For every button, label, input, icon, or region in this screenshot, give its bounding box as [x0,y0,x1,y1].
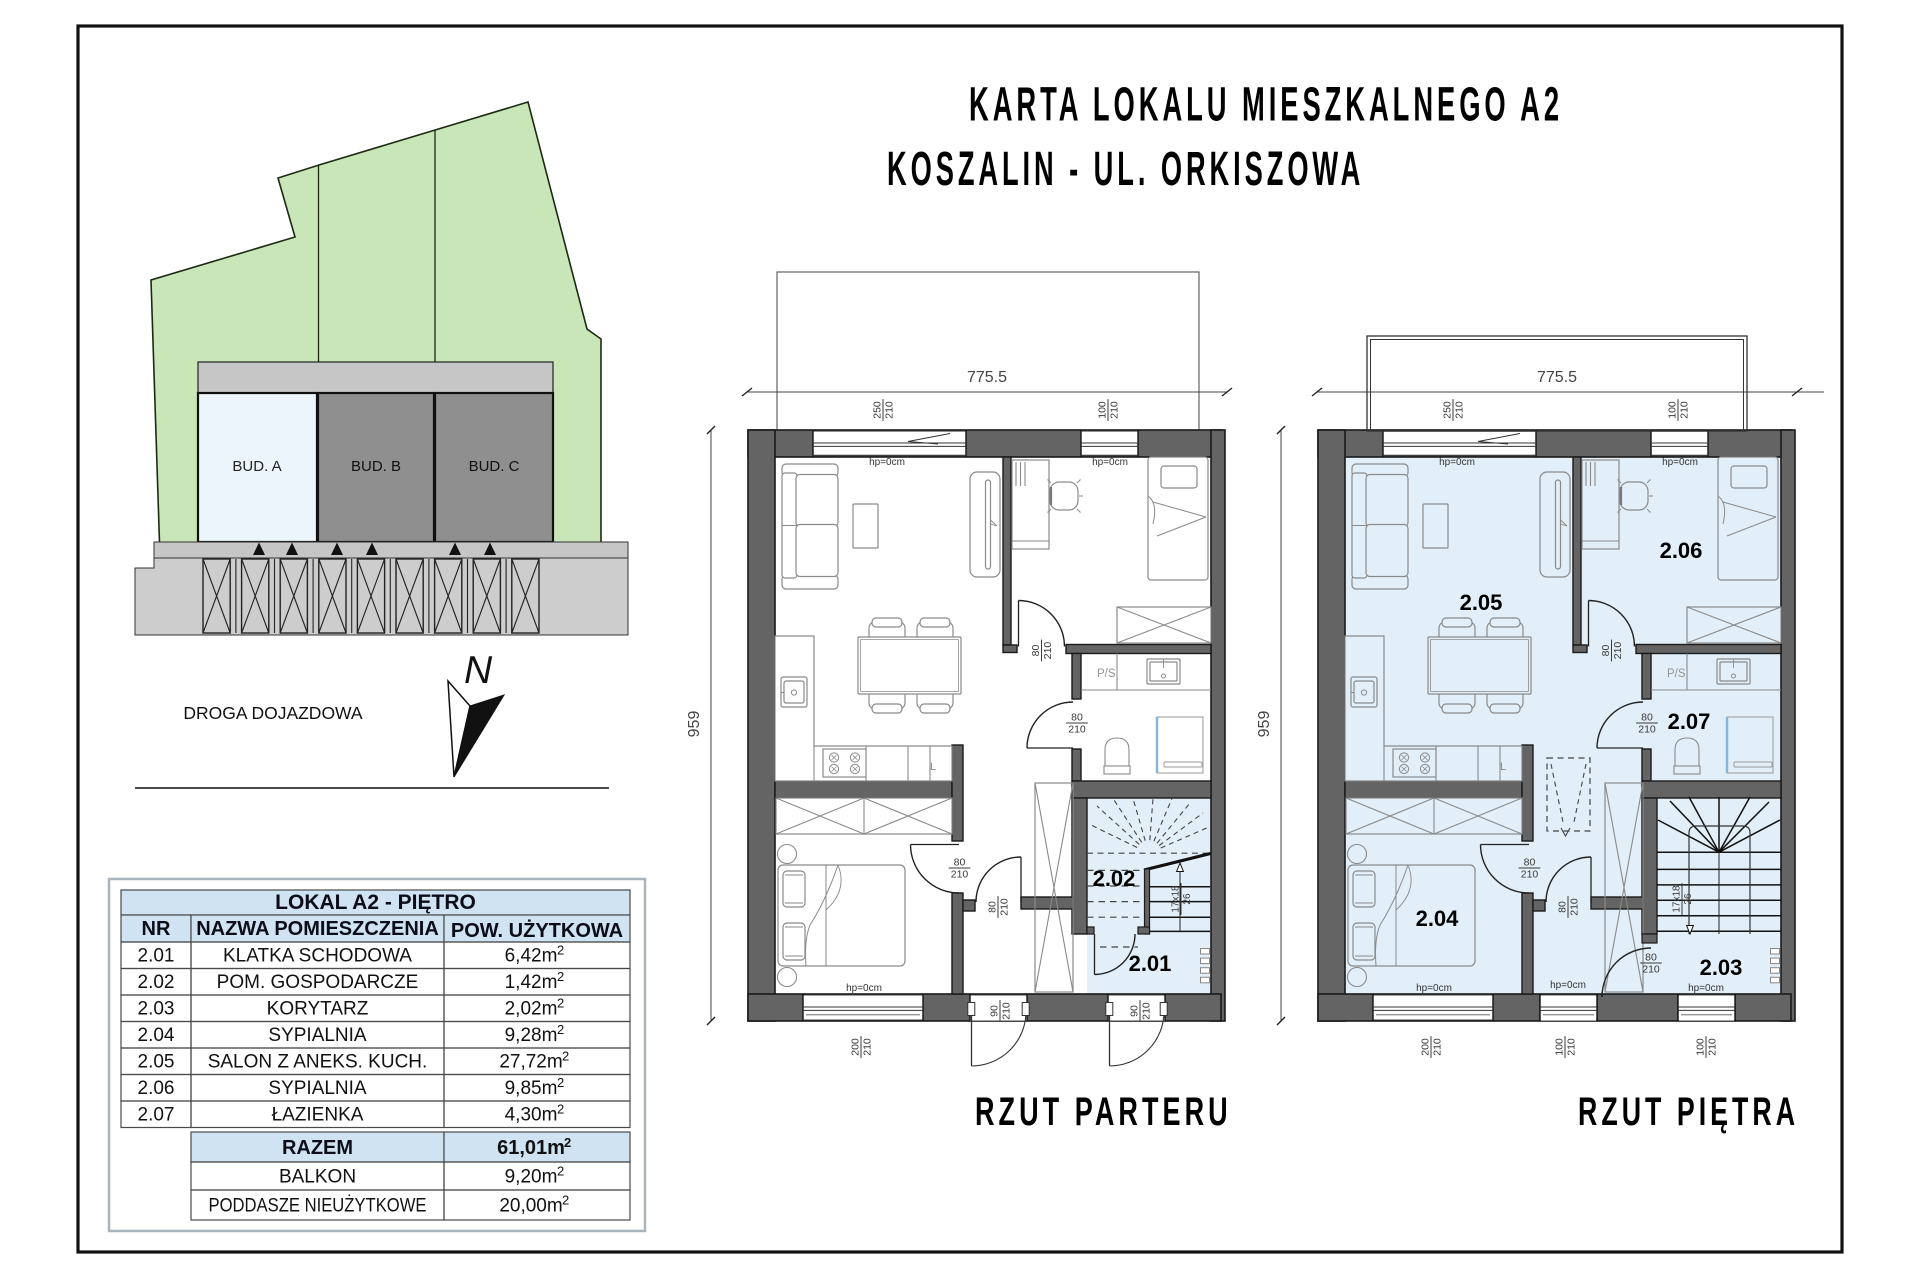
svg-text:2: 2 [557,1102,564,1117]
svg-text:RAZEM: RAZEM [282,1137,353,1159]
svg-text:210: 210 [1566,1038,1578,1056]
svg-text:27,72m: 27,72m [499,1052,562,1073]
svg-text:hp=0cm: hp=0cm [1550,980,1586,991]
svg-text:20,00m: 20,00m [499,1196,562,1217]
svg-text:2.03: 2.03 [1700,955,1743,980]
svg-text:2.06: 2.06 [1660,538,1703,563]
svg-text:SYPIALNIA: SYPIALNIA [268,1025,367,1046]
svg-text:9,85m: 9,85m [505,1078,558,1099]
svg-text:2.04: 2.04 [138,1025,175,1046]
svg-text:2.05: 2.05 [138,1052,175,1073]
svg-text:2.02: 2.02 [1093,866,1136,891]
svg-text:SALON Z ANEKS. KUCH.: SALON Z ANEKS. KUCH. [208,1052,428,1073]
svg-text:80: 80 [1645,952,1657,964]
svg-text:61,01m: 61,01m [497,1137,565,1159]
svg-text:BUD. A: BUD. A [232,458,281,475]
svg-text:210: 210 [1141,1002,1153,1020]
svg-text:17x18: 17x18 [1171,885,1182,913]
svg-text:2: 2 [557,943,564,958]
svg-text:BALKON: BALKON [279,1167,356,1188]
svg-text:POM. GOSPODARCZE: POM. GOSPODARCZE [217,972,419,993]
svg-text:2: 2 [562,1193,569,1208]
svg-text:4,30m: 4,30m [505,1105,558,1126]
svg-text:2.04: 2.04 [1416,906,1460,931]
svg-text:2: 2 [557,996,564,1011]
svg-text:26: 26 [1683,893,1694,905]
svg-text:LOKAL A2 - PIĘTRO: LOKAL A2 - PIĘTRO [275,891,476,914]
svg-text:KLATKA SCHODOWA: KLATKA SCHODOWA [223,946,412,967]
svg-text:KOSZALIN - UL. ORKISZOWA: KOSZALIN - UL. ORKISZOWA [887,141,1364,195]
svg-text:210: 210 [1707,1038,1719,1056]
svg-text:6,42m: 6,42m [505,946,558,967]
svg-text:2,02m: 2,02m [505,999,558,1020]
svg-text:9,28m: 9,28m [505,1025,558,1046]
svg-text:2.02: 2.02 [138,972,175,993]
svg-text:2: 2 [562,1049,569,1064]
svg-text:NR: NR [142,918,171,940]
svg-text:2: 2 [564,1135,571,1150]
svg-text:2.01: 2.01 [138,946,175,967]
svg-text:100: 100 [1554,1038,1566,1056]
svg-text:9,20m: 9,20m [505,1167,558,1188]
svg-text:ŁAZIENKA: ŁAZIENKA [272,1105,364,1126]
svg-text:90: 90 [989,1005,1001,1017]
svg-text:N: N [464,649,493,692]
svg-text:BUD. B: BUD. B [351,458,401,475]
svg-text:BUD. C: BUD. C [469,458,520,475]
svg-text:17x18: 17x18 [1672,885,1683,913]
svg-text:hp=0cm: hp=0cm [1688,983,1724,994]
svg-text:2.06: 2.06 [138,1078,175,1099]
svg-text:RZUT PIĘTRA: RZUT PIĘTRA [1578,1090,1799,1135]
svg-text:2: 2 [557,1022,564,1037]
svg-text:90: 90 [1129,1005,1141,1017]
svg-text:2.03: 2.03 [138,999,175,1020]
svg-text:1,42m: 1,42m [505,972,558,993]
svg-text:100: 100 [1695,1038,1707,1056]
svg-text:PODDASZE NIEUŻYTKOWE: PODDASZE NIEUŻYTKOWE [209,1196,427,1217]
svg-text:2.07: 2.07 [138,1105,175,1126]
svg-text:2.07: 2.07 [1668,709,1711,734]
svg-text:DROGA DOJAZDOWA: DROGA DOJAZDOWA [183,703,363,723]
svg-text:210: 210 [1001,1002,1013,1020]
svg-text:2: 2 [557,1164,564,1179]
svg-text:SYPIALNIA: SYPIALNIA [268,1078,367,1099]
svg-text:NAZWA POMIESZCZENIA: NAZWA POMIESZCZENIA [196,918,439,940]
svg-text:RZUT PARTERU: RZUT PARTERU [975,1090,1232,1135]
svg-text:2.05: 2.05 [1460,590,1503,615]
svg-text:KORYTARZ: KORYTARZ [267,999,369,1020]
svg-text:POW. UŻYTKOWA: POW. UŻYTKOWA [451,919,623,942]
svg-text:2: 2 [557,1075,564,1090]
svg-text:KARTA LOKALU MIESZKALNEGO A2: KARTA LOKALU MIESZKALNEGO A2 [969,77,1563,131]
svg-text:2: 2 [557,969,564,984]
svg-text:2.01: 2.01 [1129,951,1172,976]
svg-text:210: 210 [1642,964,1660,976]
svg-text:26: 26 [1182,893,1193,905]
